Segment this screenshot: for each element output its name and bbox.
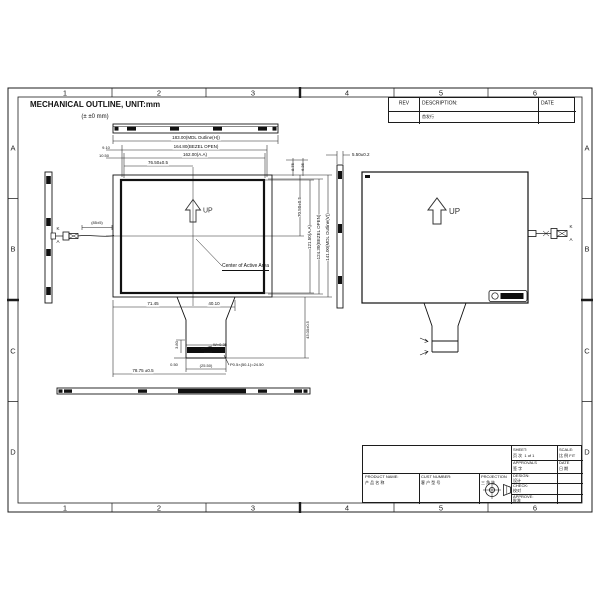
zone-col-6-top: 6: [533, 89, 537, 97]
left-side-view: [45, 172, 114, 303]
dim-mdl-outline-h: 183.00(MDL Outline(H)): [171, 136, 221, 141]
cust-number-cn: 客 户 型 号: [421, 481, 440, 485]
zone-row-d-left: D: [10, 448, 15, 456]
zone-col-2-bottom: 2: [157, 504, 161, 512]
dim-fpc-width: 40.10: [207, 302, 220, 307]
dim-active-area-v: 121.50(A.A): [308, 225, 313, 249]
dim-fpc-height: 3.80: [175, 341, 179, 349]
approvals-cn: 签 字: [513, 467, 522, 471]
dim-bezel-open-v: 124.30(BEZEL OPEN): [317, 215, 322, 260]
dim-offset-2: 10.50: [99, 154, 109, 158]
front-view-outline: [106, 167, 279, 306]
dim-active-area-h: 162.00(A.A): [182, 153, 208, 158]
check-cn: 校对: [513, 489, 521, 493]
title-block: SHEET: 页 次 1 of 1 SCALE: 比 例 FIT APPROVA…: [362, 445, 582, 503]
zone-col-1-bottom: 1: [63, 504, 67, 512]
zone-col-5-bottom: 5: [439, 504, 443, 512]
cust-number-label: CUST NUMBER:: [421, 475, 451, 479]
dim-fpc-end: 0.50: [170, 363, 178, 367]
dim-half-h: 76.50±0.5: [147, 161, 169, 166]
zone-col-6-bottom: 6: [533, 504, 537, 512]
scale-value: 比 例 FIT: [559, 454, 575, 458]
fpc-tail-front: [177, 297, 235, 358]
rear-up-label: UP: [449, 208, 460, 216]
dim-thickness: 5.50±0.2: [352, 153, 369, 158]
zone-col-1-top: 1: [63, 89, 67, 97]
date-cn: 日 期: [559, 467, 568, 471]
zone-row-c-right: C: [584, 347, 589, 355]
zone-col-5-top: 5: [439, 89, 443, 97]
zone-col-3-bottom: 3: [251, 504, 255, 512]
page-title: MECHANICAL OUTLINE, UNIT:mm: [30, 101, 160, 109]
zone-col-2-top: 2: [157, 89, 161, 97]
zone-row-a-right: A: [584, 144, 589, 152]
zone-row-b-right: B: [584, 245, 589, 253]
rev-table: REV DESCRIPTION: DATE 首发行: [388, 97, 575, 123]
dim-offset-1: 9.10: [102, 146, 110, 150]
rev-header: REV: [399, 102, 409, 107]
front-up-label: UP: [203, 208, 213, 215]
backlight-a-label: A: [56, 240, 59, 245]
rear-k-label: K: [569, 225, 572, 230]
dim-fpc-width-b: (25.50): [200, 364, 213, 368]
bottom-edge-view: [57, 388, 310, 394]
sheet-value: 页 次 1 of 1: [513, 454, 534, 458]
tolerance-note: (± ±0 mm): [81, 114, 108, 120]
projection-label: PROJECTION: [481, 475, 507, 479]
zone-row-a-left: A: [10, 144, 15, 152]
zone-row-b-left: B: [10, 245, 15, 253]
approvals-label: APPROVALS: [513, 461, 537, 465]
description-header: DESCRIPTION:: [422, 102, 458, 107]
dim-fpc-pitch-total: P0.5×(50-1)=24.50: [230, 363, 264, 367]
approve-cn: 批准: [513, 499, 521, 503]
dim-fpc-length: 43.00±0.5: [306, 321, 310, 339]
top-edge-view: [113, 124, 278, 133]
date-header: DATE: [541, 102, 554, 107]
rev-entry-description: 首发行: [422, 115, 434, 119]
dim-bottom-total: 78.75 ±0.5: [132, 369, 153, 374]
zone-col-4-bottom: 4: [345, 504, 349, 512]
dim-half-v: 70.50±0.5: [298, 197, 303, 217]
dim-mdl-outline-v: 141.00(MDL Outline(V)): [326, 213, 331, 261]
center-of-active-area-label: Center of Active Area: [222, 264, 269, 271]
sheet-label: SHEET:: [513, 448, 527, 452]
dim-top-right-2: 6.35: [301, 163, 305, 171]
rear-view-outline: [362, 172, 567, 303]
dim-trace-pitch: P=0.5: [213, 349, 224, 353]
dim-top-right-1: 8.75: [291, 163, 295, 171]
dim-trace-width: W=0.35: [213, 343, 227, 347]
zone-row-c-left: C: [10, 347, 15, 355]
zone-col-3-top: 3: [251, 89, 255, 97]
drawing-linework: [0, 0, 600, 600]
scale-label: SCALE:: [559, 448, 573, 452]
zone-col-4-top: 4: [345, 89, 349, 97]
right-dimension-lines: [264, 158, 332, 297]
backlight-k-label: K: [56, 227, 59, 232]
drawing-sheet: MECHANICAL OUTLINE, UNIT:mm (± ±0 mm) 1 …: [0, 0, 600, 600]
rear-a-label: A: [569, 238, 572, 243]
dim-bezel-open-h: 164.80(BEZEL OPEN): [173, 145, 220, 150]
projection-cn: 三 角 法: [481, 481, 495, 485]
product-name-label: PRODUCT NAME:: [365, 475, 398, 479]
product-name-cn: 产 品 名 称: [365, 481, 384, 485]
dim-wire-length: (85±5): [91, 221, 103, 225]
design-cn: 设计: [513, 479, 521, 483]
fpc-tail-rear: [420, 303, 466, 355]
date-label: DATE: [559, 461, 569, 465]
dim-fpc-left: 71.45: [146, 302, 159, 307]
zone-row-d-right: D: [584, 448, 589, 456]
